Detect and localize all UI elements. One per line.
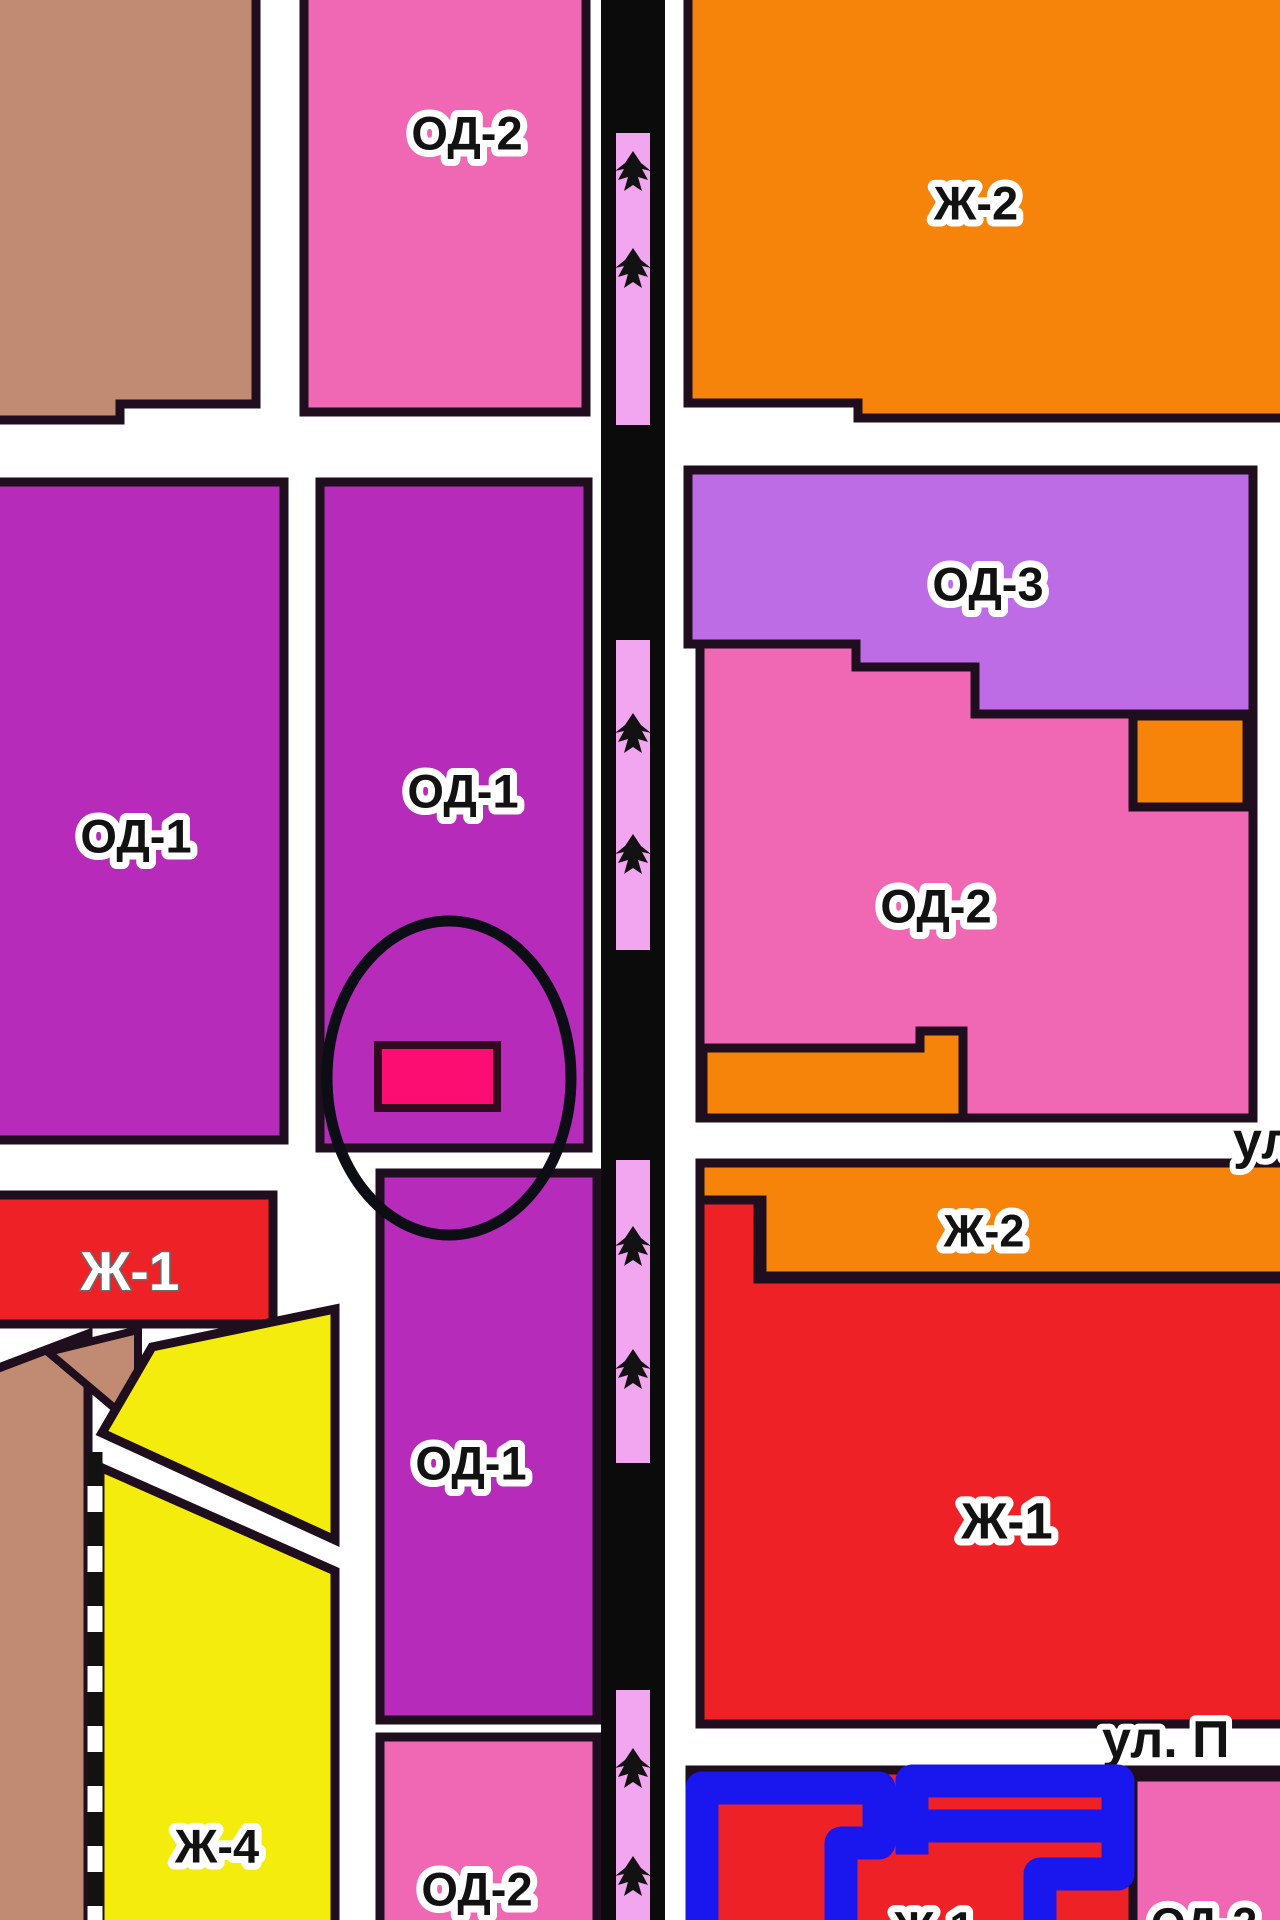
zone-label-zh1-bottom-clipped: Ж-1	[893, 1903, 975, 1920]
zone-orange-square	[1133, 716, 1247, 807]
zone-label-od2-bottom-right-clipped: ОД-2	[1151, 1899, 1257, 1920]
zoning-map-canvas: ОД-2 Ж-2 ОД-1 ОД-1 ОД-3 ОД-2 Ж-2 Ж-1 ОД-…	[0, 0, 1280, 1920]
zone-label-od1-center: ОД-1	[407, 765, 518, 818]
zone-label-od3-right: ОД-3	[932, 558, 1043, 611]
boulevard-road	[601, 0, 665, 1920]
zone-tan-top	[0, 0, 256, 420]
zoning-map: ОД-2 Ж-2 ОД-1 ОД-1 ОД-3 ОД-2 Ж-2 Ж-1 ОД-…	[0, 0, 1280, 1920]
zone-label-od1-left: ОД-1	[80, 810, 191, 863]
zone-label-zh1-right: Ж-1	[960, 1493, 1052, 1550]
zone-label-zh2-right: Ж-2	[943, 1206, 1025, 1257]
street-label-right-edge: ул	[1233, 1112, 1280, 1170]
zone-orange-strip	[703, 1031, 963, 1118]
zone-label-od1-lower: ОД-1	[415, 1437, 526, 1490]
road-pink-segment	[616, 1160, 650, 1463]
zone-tan-column	[0, 1334, 88, 1920]
zone-label-od2-top: ОД-2	[411, 107, 522, 160]
zone-label-od2-right: ОД-2	[880, 880, 991, 933]
highlighted-parcel	[378, 1045, 497, 1108]
road-pink-segment	[616, 640, 650, 950]
street-label-bottom-right: ул. П	[1102, 1711, 1230, 1769]
zone-label-zh1-left-strip: Ж-1	[80, 1240, 180, 1302]
zone-label-od2-bottom: ОД-2	[421, 1863, 532, 1916]
zone-label-zh2-top: Ж-2	[933, 177, 1018, 230]
zone-label-zh4: Ж-4	[174, 1820, 259, 1873]
zone-od2-top	[304, 0, 586, 412]
